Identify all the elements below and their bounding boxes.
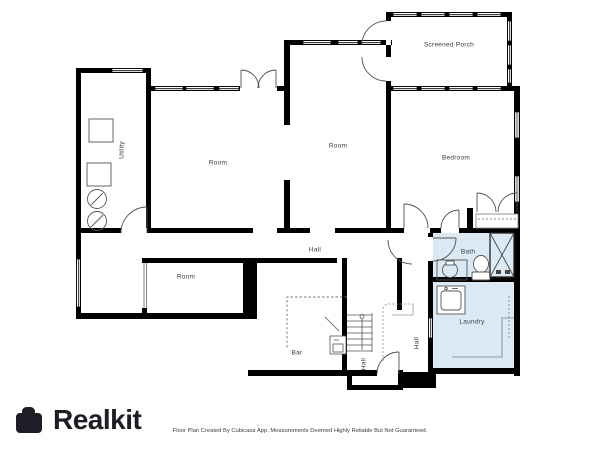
room-label-laundry: Laundry <box>459 319 484 326</box>
wardrobe-icon <box>476 214 518 228</box>
room-label-screened-porch: Screened Porch <box>424 42 474 49</box>
floor-plan-page: Utility Room Room Screened Porch Bedroom… <box>0 0 600 450</box>
washer-icon <box>437 286 465 314</box>
disclaimer-text: Floor Plan Created By Cubicasa App. Meas… <box>140 428 460 434</box>
room-label-room-lower: Room <box>177 274 195 281</box>
utility-fixtures <box>87 119 113 186</box>
washer-dryer-icons <box>88 190 107 231</box>
floor-plan-drawing <box>0 0 600 450</box>
sliding-door <box>144 263 147 308</box>
room-label-bar: Bar <box>292 350 303 357</box>
room-label-hall-main: Hall <box>309 247 321 254</box>
room-label-bedroom: Bedroom <box>442 155 470 162</box>
bar-sink-icon <box>330 336 346 354</box>
room-label-utility: Utility <box>119 141 126 159</box>
room-label-bath: Bath <box>461 249 475 256</box>
floor-plan: Utility Room Room Screened Porch Bedroom… <box>0 0 600 450</box>
staircase <box>347 304 414 361</box>
room-label-room-center: Room <box>329 143 347 150</box>
toilet-icon <box>472 256 490 281</box>
room-label-hall-side: Hall <box>414 337 421 349</box>
realkit-logo-text: Realkit <box>53 406 141 434</box>
room-label-room-left: Room <box>209 160 227 167</box>
room-label-hall-stairs: Hall <box>361 358 368 370</box>
realkit-logo: Realkit <box>14 404 141 436</box>
briefcase-icon <box>14 404 44 436</box>
